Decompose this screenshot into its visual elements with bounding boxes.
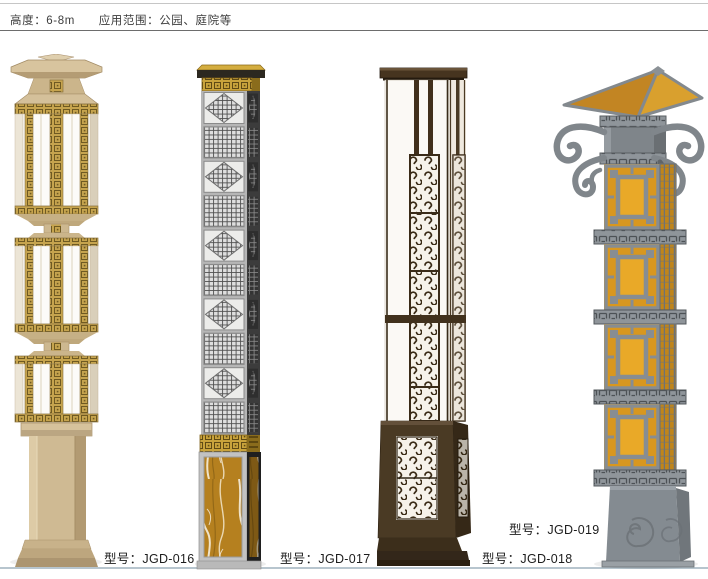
- lamp1-base: [15, 423, 98, 567]
- lamp1-lantern-1: [15, 114, 98, 221]
- lamp3-base: [377, 421, 471, 566]
- header-rule: [0, 30, 708, 31]
- lamp1-joint-2: [15, 339, 98, 364]
- lamp2-cap: [197, 65, 265, 91]
- lamp2-marble-base: [197, 452, 261, 569]
- model-number: JGD-019: [547, 523, 599, 537]
- model-label-jgd-017: 型号：JGD-017: [280, 548, 371, 567]
- top-border-line: [0, 3, 708, 4]
- model-label-jgd-018: 型号：JGD-018: [482, 548, 573, 567]
- lamp1-lantern-2: [15, 246, 98, 339]
- lamp4-base: [602, 486, 694, 567]
- lamp4-canopy: [564, 66, 702, 117]
- lamp2-body: [201, 91, 260, 435]
- lamp-jgd-019-image: [548, 58, 706, 570]
- lamp1-lantern-3: [15, 364, 98, 422]
- model-label-jgd-019: 型号：JGD-019: [509, 519, 600, 538]
- lamp3-body: [385, 80, 466, 421]
- lamp-jgd-017-image: [195, 63, 267, 570]
- model-number: JGD-016: [142, 552, 194, 566]
- model-number: JGD-017: [318, 552, 370, 566]
- model-label-jgd-016: 型号：JGD-016: [104, 548, 195, 567]
- application-spec: 应用范围：公园、庭院等: [99, 15, 232, 27]
- catalog-page: 高度：6-8m 应用范围：公园、庭院等: [0, 0, 708, 579]
- lamp-jgd-018-image: [377, 65, 472, 567]
- height-spec: 高度：6-8m: [10, 15, 75, 27]
- lamp-jgd-016-image: [8, 54, 105, 568]
- lamp4-body: [594, 164, 686, 486]
- page-header: 高度：6-8m 应用范围：公园、庭院等: [10, 12, 232, 28]
- lamp3-cap: [380, 68, 467, 81]
- model-number: JGD-018: [520, 552, 572, 566]
- lamp2-gold-band: [200, 435, 260, 452]
- lamp1-cap: [11, 54, 102, 114]
- lamp1-joint-1: [15, 221, 98, 246]
